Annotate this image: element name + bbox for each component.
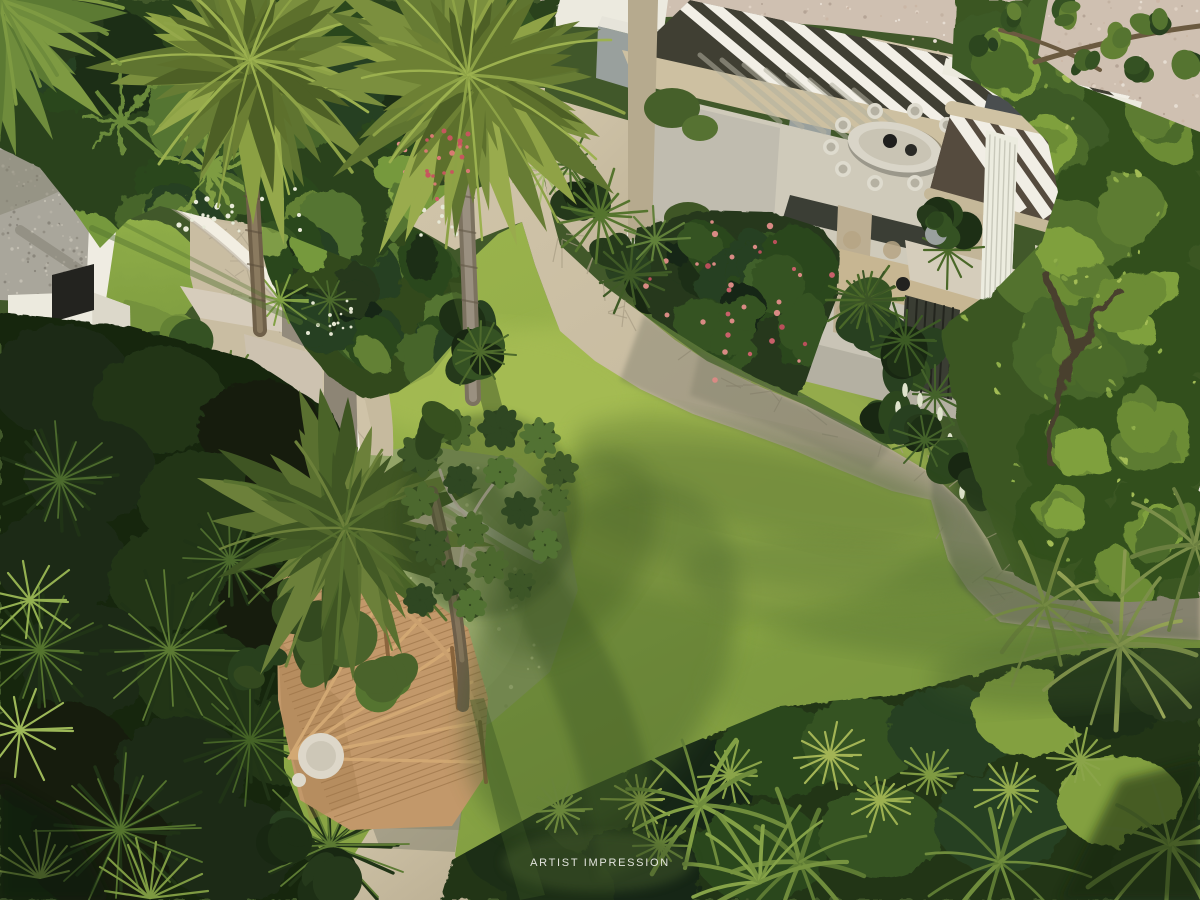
- svg-text:ARTIST IMPRESSION: ARTIST IMPRESSION: [530, 857, 670, 869]
